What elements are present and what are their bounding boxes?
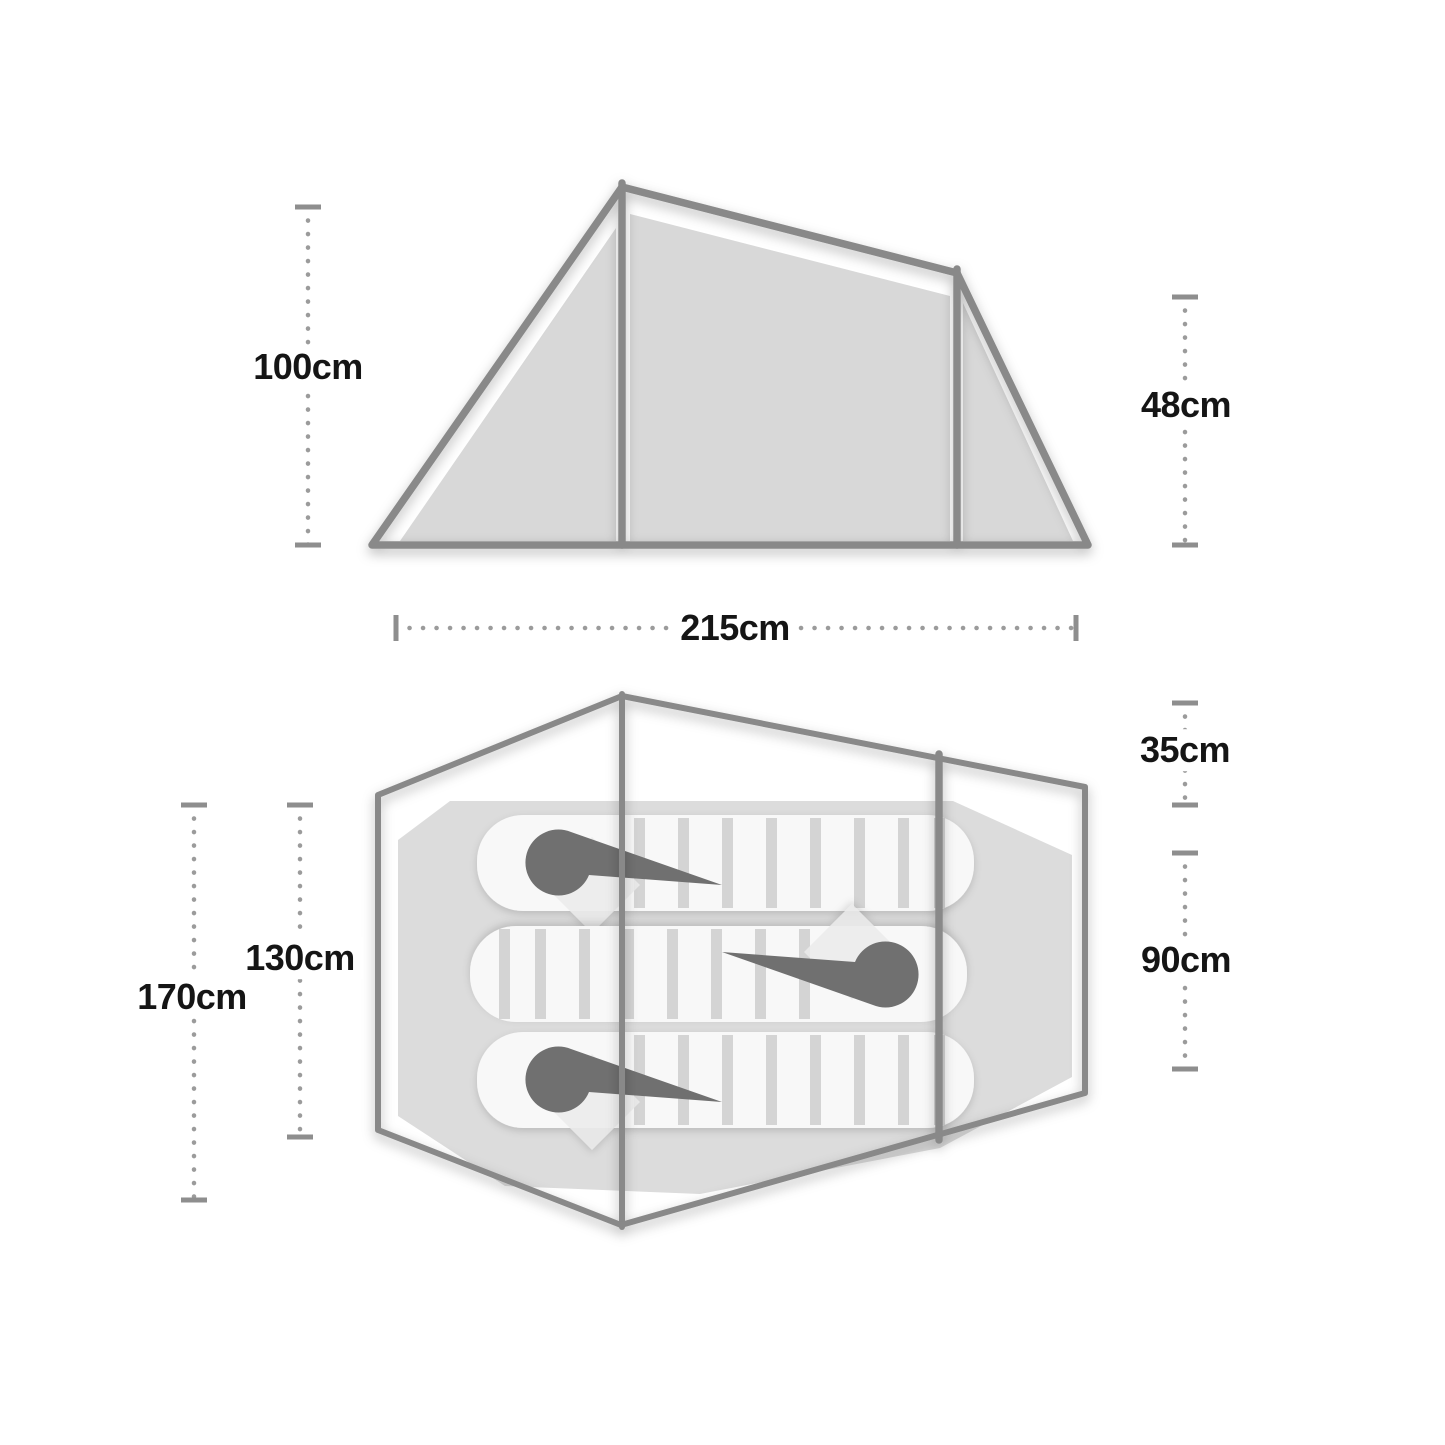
diagram-canvas — [0, 0, 1445, 1445]
side-view-left-panel — [400, 228, 616, 541]
side-width-label: 215cm — [672, 607, 798, 649]
side-view-right-panel — [963, 303, 1073, 541]
plan-outer-length-label: 170cm — [129, 976, 255, 1018]
plan-inner-width-label: 90cm — [1133, 939, 1239, 981]
side-view-middle-panel — [630, 214, 950, 541]
tent-side-view — [372, 183, 1088, 545]
side-height-left-label: 100cm — [245, 346, 371, 388]
tent-dimensions-diagram: 100cm 48cm 215cm 35cm 90cm 130cm 170cm — [0, 0, 1445, 1445]
side-height-right-label: 48cm — [1133, 384, 1239, 426]
tent-floor-plan — [378, 694, 1085, 1227]
plan-porch-depth-label: 35cm — [1132, 729, 1238, 771]
plan-inner-length-label: 130cm — [237, 937, 363, 979]
